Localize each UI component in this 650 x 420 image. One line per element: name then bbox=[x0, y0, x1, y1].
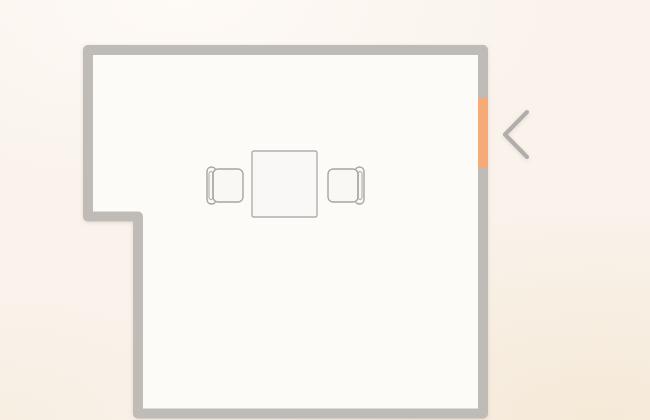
table[interactable] bbox=[252, 151, 317, 217]
door-marker[interactable] bbox=[478, 97, 488, 168]
floor-plan-stage bbox=[0, 0, 650, 420]
chevron-left-icon[interactable] bbox=[505, 112, 527, 157]
chair-left-seat[interactable] bbox=[213, 169, 243, 202]
floorplan-svg bbox=[0, 0, 650, 420]
chair-right-seat[interactable] bbox=[328, 169, 358, 202]
room-walls[interactable] bbox=[88, 50, 483, 414]
